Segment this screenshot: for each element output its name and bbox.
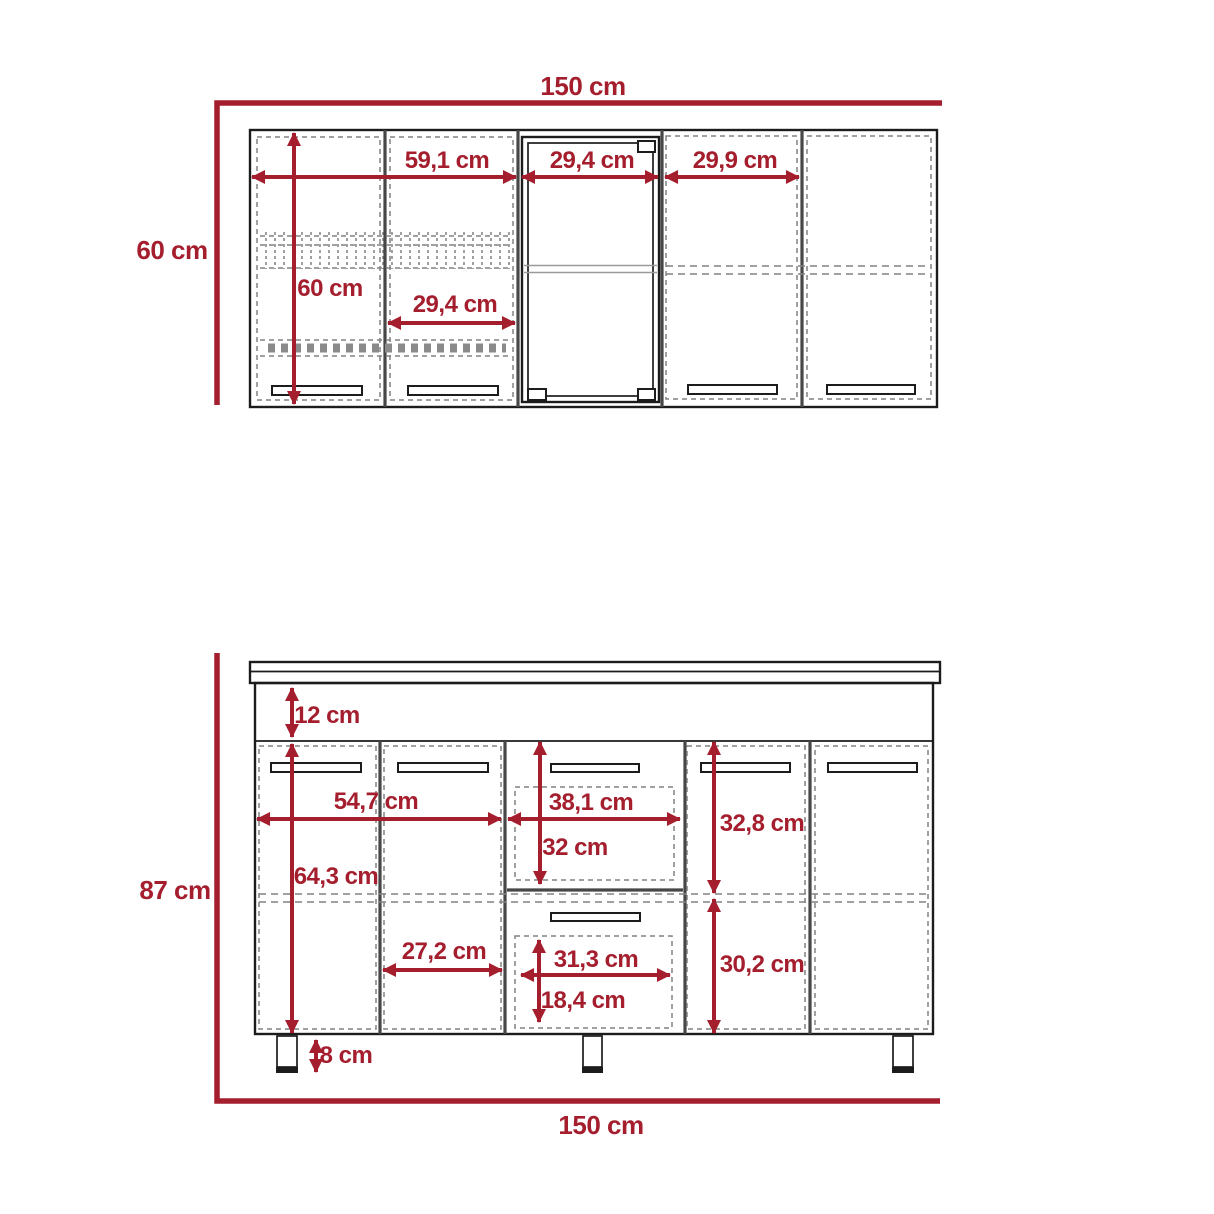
countertop xyxy=(250,662,940,683)
dim-label-left-doors-width: 59,1 cm xyxy=(405,147,490,174)
leg-right xyxy=(892,1036,914,1073)
door-2-handle xyxy=(408,386,498,395)
leg-left xyxy=(276,1036,298,1073)
door-5-handle xyxy=(827,385,915,394)
dim-label-lower-right-height: 30,2 cm xyxy=(720,951,805,978)
leg-left-foot xyxy=(276,1067,298,1073)
doors-shelf-dashed xyxy=(259,894,928,902)
dim-label-lower-drawer-width: 31,3 cm xyxy=(554,946,639,973)
leg-center-body xyxy=(583,1036,602,1067)
dim-label-lower-drawer-height: 18,4 cm xyxy=(541,987,626,1014)
door-2-handle xyxy=(398,763,488,772)
dim-label-right-door-width: 29,9 cm xyxy=(693,147,778,174)
dim-label-drawer-section-width: 38,1 cm xyxy=(549,789,634,816)
glass-door-hinge-bottom-left xyxy=(528,389,546,400)
dim-label-side-height: 87 cm xyxy=(139,875,210,905)
door-5-handle xyxy=(828,763,917,772)
dim-label-door-height: 64,3 cm xyxy=(294,863,379,890)
dim-label-upper-drawer-height: 32 cm xyxy=(542,834,608,861)
leg-right-body xyxy=(893,1036,913,1067)
dim-label-glass-door-width: 29,4 cm xyxy=(550,147,635,174)
cabinet-dimension-drawing: 150 cm 60 cm 59,1 cm 29,4 cm 29,9 cm 60 … xyxy=(0,0,1214,1214)
leg-left-body xyxy=(277,1036,297,1067)
dim-label-leg-height: 8 cm xyxy=(320,1042,373,1069)
glass-door-frame-inner xyxy=(528,143,653,396)
glass-door-hinge-top xyxy=(638,141,655,152)
door-1-handle xyxy=(272,386,362,395)
leg-center xyxy=(582,1036,603,1073)
leg-right-foot xyxy=(892,1067,914,1073)
door-5-panel-inset xyxy=(807,136,931,399)
base-cabinet-diagram: 12 cm 54,7 cm 38,1 cm 32 cm 32,8 cm 64,3… xyxy=(139,653,940,1140)
dim-label-interior-height: 60 cm xyxy=(297,275,363,302)
upper-drawer-handle xyxy=(551,764,639,772)
door-5-panel-inset xyxy=(815,746,928,1029)
lower-drawer-handle xyxy=(551,913,640,921)
wall-cabinet-diagram: 150 cm 60 cm 59,1 cm 29,4 cm 29,9 cm 60 … xyxy=(136,71,942,407)
glass-shelf-line xyxy=(524,266,657,273)
dim-label-total-width: 150 cm xyxy=(540,71,625,101)
glass-door-hinge-bottom-right xyxy=(638,389,655,400)
dim-label-single-door-width: 27,2 cm xyxy=(402,938,487,965)
dim-label-side-height: 60 cm xyxy=(136,235,207,265)
dim-label-single-door-width: 29,4 cm xyxy=(413,291,498,318)
plate-rack-tines xyxy=(266,232,509,269)
door-4-handle xyxy=(688,385,777,394)
door-1-handle xyxy=(271,763,361,772)
dim-label-upper-right-height: 32,8 cm xyxy=(720,810,805,837)
right-doors-shelf-dashed xyxy=(666,266,930,274)
dim-label-total-width: 150 cm xyxy=(558,1110,643,1140)
dim-label-left-doors-width: 54,7 cm xyxy=(334,788,419,815)
door-4-panel-inset xyxy=(687,746,805,1029)
leg-center-foot xyxy=(582,1067,603,1073)
dim-label-apron-height: 12 cm xyxy=(294,702,360,729)
